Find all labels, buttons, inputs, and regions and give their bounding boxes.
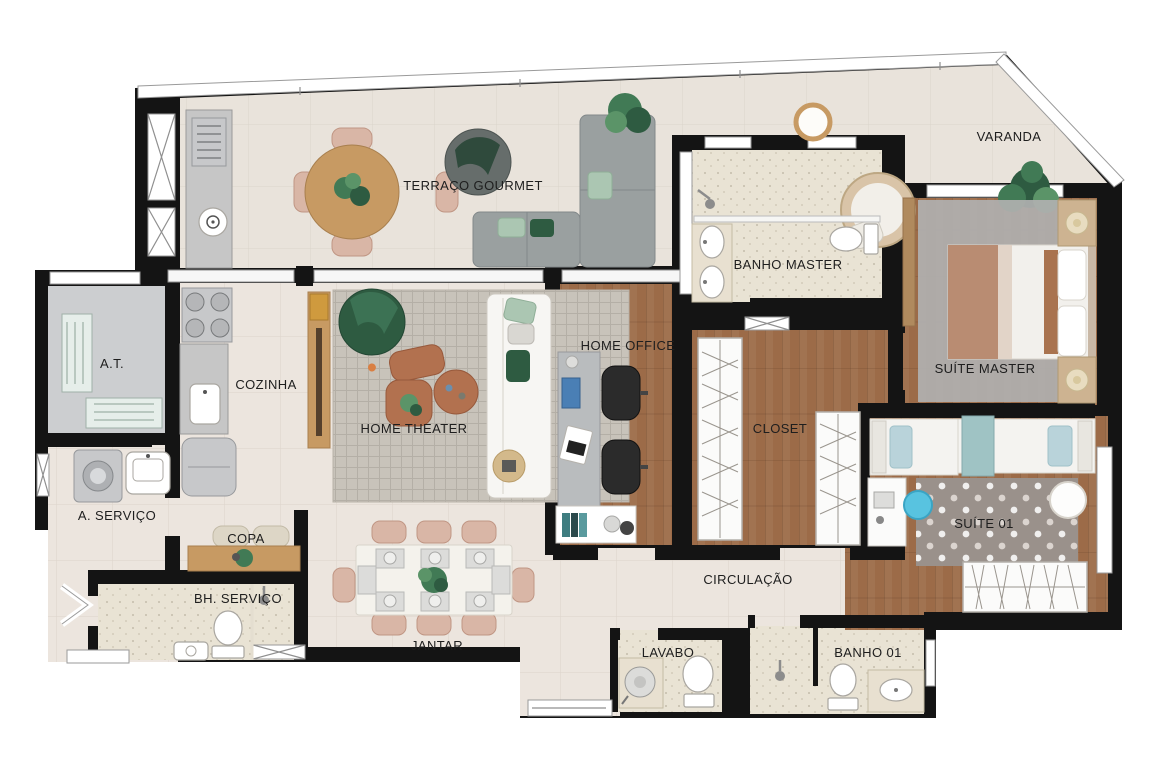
- banho-master-toilet-icon: [830, 224, 878, 254]
- suite-01-chair-icon: [904, 491, 932, 519]
- banho-01-sink-icon: [868, 670, 924, 712]
- room-label-closet: CLOSET: [753, 421, 807, 436]
- room-label-banho-master: BANHO MASTER: [734, 257, 843, 272]
- room-label-suite-master: SUÍTE MASTER: [935, 361, 1036, 376]
- banho-01-toilet-icon: [828, 664, 858, 710]
- refrigerator-icon: [182, 438, 236, 496]
- suite-01-bed-icon: [870, 416, 1095, 476]
- servico-window: [67, 650, 129, 663]
- theater-armchair-icon: [339, 289, 405, 355]
- entry-door: [528, 700, 612, 716]
- room-label-circulacao: CIRCULAÇÃO: [703, 572, 792, 587]
- room-label-jantar: JANTAR: [411, 638, 463, 653]
- room-label-lavabo: LAVABO: [642, 645, 695, 660]
- room-label-varanda: VARANDA: [977, 129, 1042, 144]
- office-shelf-icon: [556, 506, 636, 543]
- suite-01-desk-icon: [868, 478, 906, 546]
- room-label-home-office: HOME OFFICE: [581, 338, 676, 353]
- varanda-side-table-icon: [796, 105, 830, 139]
- bathroom-sink-icon: [174, 642, 208, 660]
- terrace-glass-door: [314, 270, 543, 282]
- copa-sideboard-icon: [188, 546, 300, 571]
- banho-master-door: [680, 152, 692, 294]
- at-window: [50, 272, 140, 284]
- stove-icon: [182, 288, 232, 342]
- room-label-cozinha: COZINHA: [235, 377, 296, 392]
- room-label-terraco-gourmet: TERRAÇO GOURMET: [403, 178, 543, 193]
- suite-01-wardrobe-icon: [963, 562, 1087, 612]
- lavabo-toilet-icon: [683, 656, 714, 707]
- room-label-home-theater: HOME THEATER: [361, 421, 468, 436]
- duct-servico-icon: [37, 454, 49, 496]
- suite-master-closet-strip: [903, 198, 915, 326]
- banho-01-door: [926, 640, 935, 686]
- banho-master-vent: [705, 137, 751, 148]
- room-label-bh-servico: BH. SERVIÇO: [194, 591, 282, 606]
- suite-01-round-table-icon: [1050, 482, 1086, 518]
- room-label-copa: COPA: [227, 531, 264, 546]
- banho-master-vanity-icon: [692, 224, 732, 302]
- office-desk-icon: [558, 352, 600, 506]
- tv-panel-icon: [308, 292, 330, 448]
- floor-plan: TERRAÇO GOURMET VARANDA BANHO MASTER SUÍ…: [0, 0, 1154, 782]
- kitchen-sink-counter-icon: [180, 344, 228, 434]
- duct-shaft-icon: [148, 114, 175, 256]
- suite-01-window: [1097, 447, 1112, 573]
- washing-machine-icon: [74, 450, 122, 502]
- lavabo-sink-icon: [619, 658, 663, 708]
- floor-plan-svg: TERRAÇO GOURMET VARANDA BANHO MASTER SUÍ…: [0, 0, 1154, 782]
- duct-bh-icon: [253, 645, 305, 659]
- terrace-glass-door: [168, 270, 294, 282]
- theater-side-table-icon: [493, 450, 525, 482]
- barbecue-counter-icon: [186, 110, 232, 268]
- room-label-suite-01: SUÍTE 01: [954, 516, 1014, 531]
- laundry-sink-icon: [126, 452, 170, 494]
- room-label-a-servico: A. SERVIÇO: [78, 508, 156, 523]
- room-label-at: A.T.: [100, 356, 124, 371]
- toilet-icon: [212, 611, 244, 658]
- suite-master-bed-icon: [948, 243, 1096, 361]
- room-label-banho-01: BANHO 01: [834, 645, 902, 660]
- terrace-glass-door: [562, 270, 690, 282]
